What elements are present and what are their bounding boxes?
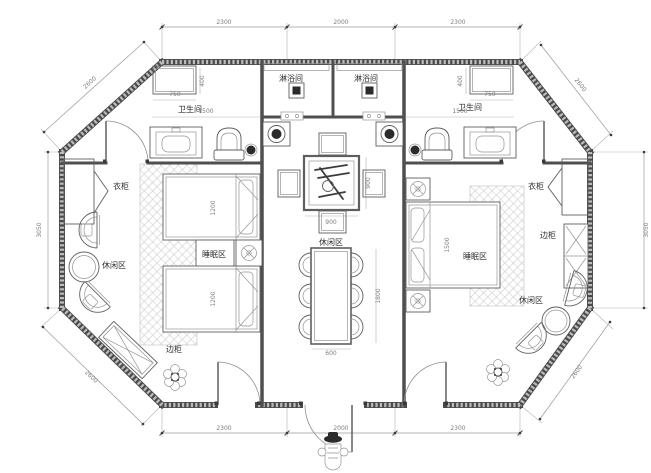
- washbasin-right: [376, 122, 403, 146]
- entrance-figure: [318, 432, 348, 470]
- door-bathroom-left: [103, 121, 149, 163]
- leisure-chair-left-1: [79, 212, 100, 248]
- label-sleeping-area-right: 睡眠区: [463, 252, 487, 261]
- door-bedroom-left: [215, 362, 261, 405]
- sink-left: [150, 127, 202, 158]
- tea-table: [304, 156, 359, 210]
- dim-bottom-left: 2300: [216, 425, 231, 432]
- shower-room-right-fixtures: [337, 64, 402, 121]
- sink-right: [464, 127, 516, 158]
- dim-diagonal-bottom-right: 2600: [569, 364, 584, 381]
- dining-chairs-left: [299, 253, 311, 339]
- dim-shelf-depth-left: 400: [199, 75, 206, 87]
- tea-stool-top: [319, 133, 346, 155]
- label-wardrobe-right: 衣柜: [528, 181, 544, 191]
- nightstand-right-top: [406, 178, 430, 200]
- dining-table: [311, 248, 351, 344]
- wardrobe-right-unit: [548, 159, 588, 215]
- floor-plan-page: 淋浴间淋浴间卫生间卫生间衣柜衣柜睡眠区睡眠区休闲区休闲区休闲区边柜边柜23002…: [0, 0, 651, 473]
- leisure-chair-left-2: [72, 280, 112, 320]
- dim-bottom-right: 2300: [450, 425, 465, 432]
- washbasin-left: [263, 122, 290, 146]
- floor-plan-canvas: 淋浴间淋浴间卫生间卫生间衣柜衣柜睡眠区睡眠区休闲区休闲区休闲区边柜边柜23002…: [0, 0, 651, 473]
- dim-bed1-left: 1200: [210, 200, 217, 215]
- dim-top-right: 2300: [450, 19, 465, 26]
- dim-shelf-right: 750: [484, 91, 496, 98]
- dim-tea-table-width: 900: [325, 219, 337, 226]
- label-shower-room-left: 淋浴间: [279, 73, 303, 83]
- dining-area: [299, 248, 363, 344]
- bathroom-shelf-right: [470, 66, 513, 94]
- dim-dining-width: 600: [325, 350, 337, 357]
- dim-diagonal-top-right: 2600: [573, 77, 588, 93]
- dim-top-left: 2300: [216, 19, 231, 26]
- bathroom-shelf-left: [153, 66, 196, 94]
- dim-bed-right: 1500: [444, 237, 451, 252]
- plant-left: [164, 365, 187, 391]
- dim-bathroom-left: 1500: [198, 108, 213, 115]
- wardrobe-left-unit: [64, 159, 108, 224]
- dim-diagonal-top-left: 2600: [82, 75, 98, 91]
- dim-dining-length: 1800: [375, 288, 382, 303]
- bedroom-left: [64, 159, 262, 391]
- dim-tea-table-height: 900: [365, 177, 372, 189]
- dim-shelf-depth-right: 400: [457, 75, 464, 87]
- leisure-table-left: [69, 252, 99, 282]
- dim-diagonal-bottom-left: 2600: [83, 369, 99, 385]
- tea-stool-left: [278, 170, 300, 197]
- door-bedroom-right: [403, 362, 448, 405]
- plant-right: [487, 360, 510, 386]
- nightstand-right-bottom: [406, 290, 430, 312]
- label-leisure-area-left: 休闲区: [102, 260, 126, 270]
- toilet-left: [214, 128, 257, 160]
- flower-table-left: [236, 240, 262, 266]
- dim-bathroom-right: 1500: [452, 108, 467, 115]
- dining-chairs-right: [351, 253, 363, 339]
- label-shower-room-right: 淋浴间: [354, 73, 378, 83]
- dim-shelf-left: 750: [169, 91, 181, 98]
- label-sleeping-area-left: 睡眠区: [202, 250, 226, 259]
- shower-room-left-fixtures: [264, 64, 329, 121]
- bed-right: [406, 202, 500, 288]
- dim-side-left: 3050: [36, 222, 43, 237]
- dim-side-right: 3050: [643, 222, 650, 237]
- dim-top-center: 2000: [333, 19, 348, 26]
- label-wardrobe-left: 衣柜: [113, 181, 129, 191]
- dim-bed2-left: 1200: [210, 291, 217, 306]
- label-side-cabinet-right: 边柜: [540, 230, 556, 240]
- label-side-cabinet-left: 边柜: [166, 344, 182, 354]
- label-leisure-area-right: 休闲区: [519, 295, 543, 305]
- label-leisure-area-center: 休闲区: [319, 237, 343, 247]
- dim-bottom-center: 2000: [333, 425, 348, 432]
- toilet-right: [409, 128, 452, 160]
